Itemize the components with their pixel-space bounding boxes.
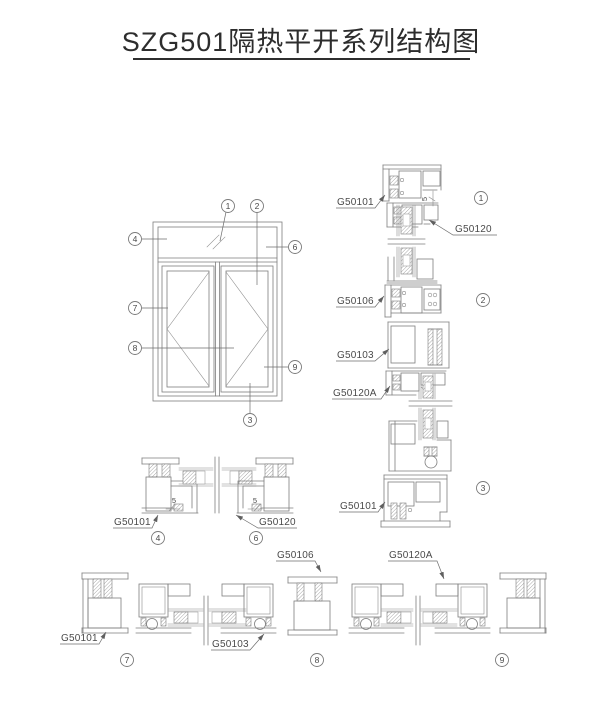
profile-label: G50101 <box>337 197 374 208</box>
label-right-top-frame: G50101 <box>336 195 385 208</box>
callout-6-elevation: 6 <box>266 241 302 254</box>
profile-label: G50120A <box>333 388 377 399</box>
title-block: SZG501隔热平开系列结构图 <box>122 27 481 59</box>
label-right-mullion: G50103 <box>336 349 389 361</box>
profile-label: G50120 <box>455 224 492 235</box>
bottom-sash-4 <box>435 584 490 633</box>
callout-3-elevation: 3 <box>244 383 257 427</box>
callout-number: 4 <box>156 533 161 543</box>
callout-number: 4 <box>133 234 138 244</box>
bottom-glass-a <box>168 596 246 645</box>
window-frame <box>153 222 282 401</box>
mid-left-jamb: 5 <box>142 458 198 513</box>
callout-7-section: 7 <box>121 654 134 667</box>
label-right-sash-a: G50120A <box>332 386 390 399</box>
callout-number: 2 <box>255 201 260 211</box>
profile-label: G50120A <box>389 550 433 561</box>
callout-3-section: 3 <box>477 482 490 495</box>
callout-number: 9 <box>500 655 505 665</box>
bottom-sash-2 <box>221 584 276 633</box>
callout-9-section: 9 <box>496 654 509 667</box>
label-mid-frame: G50101 <box>113 515 158 528</box>
mid-glass-left <box>179 468 213 486</box>
right-sash <box>221 266 273 392</box>
profile-label: G50103 <box>212 639 249 650</box>
section-mid: 5 <box>113 457 297 545</box>
callout-number: 7 <box>133 303 138 313</box>
label-right-transom: G50106 <box>336 296 384 307</box>
label-right-top-sash: G50120 <box>429 220 497 235</box>
callout-8-elevation: 8 <box>129 342 235 355</box>
dim-5-top: 5 <box>420 197 429 201</box>
transom-glass-hatch <box>207 235 225 249</box>
callout-number: 8 <box>315 655 320 665</box>
glass-unit-vertical-1 <box>388 205 425 277</box>
callout-6-section: 6 <box>250 532 263 545</box>
label-bottom-frame: G50101 <box>60 632 106 644</box>
head-frame-profile: 5 <box>383 165 441 206</box>
callout-number: 8 <box>133 343 138 353</box>
callout-2-section: 2 <box>477 294 490 307</box>
drawing-canvas: SZG501隔热平开系列结构图 <box>0 0 600 722</box>
callout-number: 3 <box>481 483 486 493</box>
profile-label: G50120 <box>259 517 296 528</box>
callout-4-elevation: 4 <box>129 233 168 246</box>
label-mid-sash: G50120 <box>236 515 297 528</box>
callout-9-elevation: 9 <box>264 361 302 374</box>
mullion-frame-profile <box>388 322 449 368</box>
callout-8-section: 8 <box>311 654 324 667</box>
callout-number: 2 <box>481 295 486 305</box>
callout-1-section: 1 <box>475 192 488 205</box>
callout-1-elevation: 1 <box>220 200 235 242</box>
callout-number: 7 <box>125 655 130 665</box>
transom-frame-profile <box>385 285 441 317</box>
callout-number: 3 <box>248 415 253 425</box>
bottom-sash-profile <box>389 421 451 471</box>
profile-label: G50101 <box>340 501 377 512</box>
callout-2-elevation: 2 <box>251 200 264 286</box>
profile-label: G50103 <box>337 350 374 361</box>
head-sash-profile <box>387 203 438 227</box>
bottom-mullion <box>288 577 337 635</box>
callout-number: 6 <box>293 242 298 252</box>
page-title: SZG501隔热平开系列结构图 <box>122 27 481 57</box>
bottom-right-jamb <box>500 573 546 633</box>
section-bottom: G50106 G50120A G50101 G50103 7 8 9 <box>60 550 546 667</box>
mid-glass-right <box>222 468 256 486</box>
profile-label: G50101 <box>61 633 98 644</box>
mid-break-lines <box>215 457 219 513</box>
profile-label: G50101 <box>114 517 151 528</box>
callout-number: 9 <box>293 362 298 372</box>
profile-label: G50106 <box>277 550 314 561</box>
sash-a-profile <box>386 371 446 395</box>
callout-number: 1 <box>226 201 231 211</box>
left-sash <box>162 266 214 392</box>
dim-5-left: 5 <box>172 496 176 505</box>
label-right-bottom-frame: G50101 <box>339 501 385 512</box>
bottom-left-jamb <box>82 573 128 633</box>
callout-4-section: 4 <box>152 532 165 545</box>
callout-number: 1 <box>479 193 484 203</box>
label-bottom-sash: G50103 <box>211 634 264 650</box>
sill-frame-profile <box>381 475 450 527</box>
label-bottom-mullion: G50106 <box>276 550 321 572</box>
elevation-view: 1 2 4 6 7 8 9 <box>129 200 302 427</box>
profile-label: G50106 <box>337 296 374 307</box>
mid-right-jamb: 5 <box>237 458 293 513</box>
bottom-glass-b <box>381 596 457 645</box>
glass-unit-vertical-2 <box>409 374 452 440</box>
callout-number: 6 <box>254 533 259 543</box>
dim-5-right: 5 <box>253 496 257 505</box>
label-bottom-sash-a: G50120A <box>388 550 444 579</box>
bottom-sash-3 <box>349 584 404 633</box>
bottom-sash-1 <box>136 584 191 633</box>
section-right-column: 5 <box>332 165 497 527</box>
